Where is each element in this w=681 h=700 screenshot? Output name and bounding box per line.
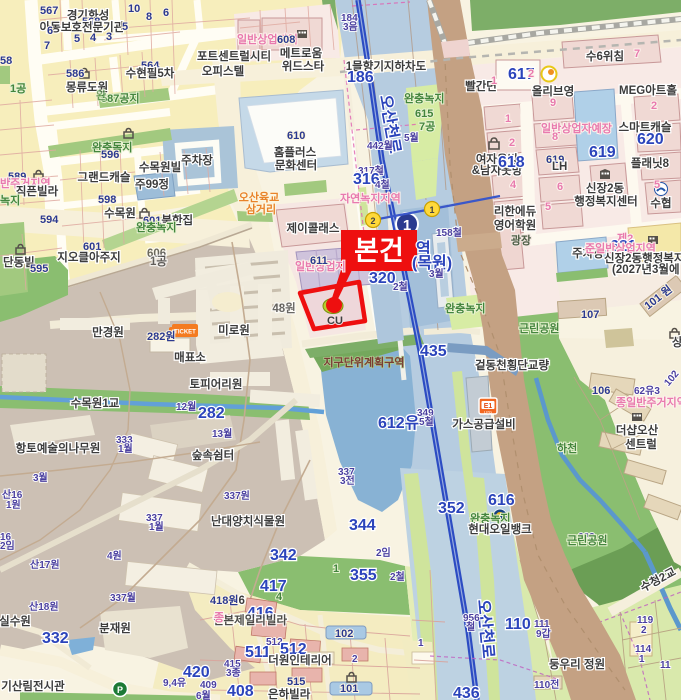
svg-text:더샵오산: 더샵오산: [616, 423, 659, 437]
svg-text:행정복지센터: 행정복지센터: [574, 194, 637, 208]
svg-text:6: 6: [47, 25, 53, 37]
svg-text:619: 619: [589, 144, 616, 161]
svg-text:2: 2: [370, 216, 375, 226]
svg-text:2임: 2임: [0, 539, 15, 552]
svg-text:제이콜래스: 제이콜래스: [287, 221, 340, 235]
svg-text:상가: 상가: [672, 335, 681, 349]
svg-text:5: 5: [122, 21, 128, 33]
svg-text:주99정: 주99정: [135, 177, 169, 191]
svg-text:587공지: 587공지: [101, 91, 140, 105]
svg-text:342: 342: [270, 547, 297, 564]
svg-text:436: 436: [453, 685, 480, 700]
svg-text:1공: 1공: [150, 255, 167, 268]
svg-text:직픈빌라: 직픈빌라: [16, 184, 59, 198]
svg-text:숲속쉼터: 숲속쉼터: [192, 448, 234, 462]
svg-text:3월: 3월: [33, 472, 48, 484]
svg-text:9,4유: 9,4유: [163, 677, 186, 689]
svg-text:지오클아주지: 지오클아주지: [57, 250, 120, 264]
svg-text:596: 596: [101, 149, 119, 161]
svg-text:삼거리: 삼거리: [246, 202, 276, 216]
svg-text:58: 58: [0, 55, 12, 67]
svg-text:408: 408: [227, 683, 254, 700]
svg-text:토피어리원: 토피어리원: [190, 377, 243, 391]
svg-text:겉동천횡단교량: 겉동천횡단교량: [475, 358, 549, 372]
svg-text:598: 598: [98, 194, 116, 206]
svg-text:608: 608: [277, 34, 295, 46]
svg-text:615: 615: [415, 108, 433, 120]
svg-text:수6위침: 수6위침: [586, 49, 624, 63]
svg-text:올리브영: 올리브영: [532, 84, 574, 98]
svg-text:420: 420: [183, 664, 210, 681]
svg-text:근린공원: 근린공원: [519, 321, 559, 335]
svg-text:417: 417: [260, 578, 287, 595]
svg-text:620: 620: [637, 131, 664, 148]
svg-text:5월: 5월: [404, 132, 419, 144]
svg-text:2: 2: [641, 625, 647, 636]
svg-text:9갑: 9갑: [536, 628, 552, 640]
svg-text:442월: 442월: [367, 140, 393, 152]
svg-text:영어학원: 영어학원: [494, 218, 536, 232]
svg-text:기산림전시관: 기산림전시관: [1, 679, 65, 693]
svg-text:2: 2: [509, 137, 515, 149]
svg-text:CU: CU: [327, 315, 343, 327]
svg-text:신장2동: 신장2동: [586, 181, 625, 195]
svg-text:본건: 본건: [354, 236, 404, 266]
svg-text:5: 5: [545, 201, 551, 213]
svg-text:LH: LH: [552, 161, 567, 173]
svg-text:광장: 광장: [511, 233, 531, 247]
svg-text:7공: 7공: [419, 120, 435, 133]
svg-text:186: 186: [347, 69, 374, 86]
svg-text:1: 1: [491, 75, 497, 87]
svg-text:미로원: 미로원: [218, 323, 250, 337]
svg-text:은하빌라: 은하빌라: [268, 687, 311, 700]
svg-text:연본제일리빌라: 연본제일리빌라: [213, 613, 287, 627]
svg-text:리한에듀: 리한에듀: [494, 204, 537, 218]
svg-text:282원: 282원: [147, 329, 175, 343]
svg-text:5: 5: [74, 33, 80, 45]
svg-text:오피스텔: 오피스텔: [202, 64, 244, 78]
svg-text:지구단위계획구역: 지구단위계획구역: [324, 355, 405, 369]
svg-text:1: 1: [429, 205, 434, 215]
svg-text:수현필5차: 수현필5차: [126, 66, 175, 80]
svg-text:282: 282: [198, 405, 225, 422]
svg-text:3월: 3월: [429, 268, 444, 280]
svg-text:철: 철: [466, 620, 475, 633]
svg-text:595: 595: [30, 263, 48, 275]
svg-text:612유: 612유: [378, 414, 420, 432]
svg-text:위드스타: 위드스타: [282, 59, 325, 73]
svg-text:4: 4: [276, 591, 283, 603]
svg-text:실수원: 실수원: [0, 614, 31, 628]
svg-text:101: 101: [340, 683, 358, 695]
svg-text:녹지: 녹지: [0, 193, 20, 207]
svg-text:62유3: 62유3: [634, 385, 660, 397]
svg-text:337월: 337월: [110, 592, 136, 604]
svg-text:산17원: 산17원: [30, 558, 60, 571]
svg-text:110: 110: [505, 616, 531, 633]
svg-text:2: 2: [352, 654, 358, 665]
svg-text:110전: 110전: [534, 678, 559, 691]
svg-text:5철: 5철: [419, 415, 434, 428]
svg-text:주차장: 주차장: [181, 153, 213, 167]
svg-text:수목원: 수목원: [104, 206, 136, 220]
svg-text:611: 611: [310, 255, 328, 267]
svg-text:오산육교: 오산육교: [239, 190, 279, 204]
svg-text:6: 6: [163, 7, 169, 19]
svg-text:수협: 수협: [650, 196, 671, 210]
svg-text:가스공급설비: 가스공급설비: [452, 417, 515, 431]
svg-text:현대오일뱅크: 현대오일뱅크: [468, 522, 532, 536]
svg-text:332: 332: [42, 630, 69, 647]
svg-text:3음: 3음: [343, 21, 358, 33]
svg-text:11: 11: [660, 660, 671, 671]
svg-text:6: 6: [557, 181, 563, 193]
svg-text:4철: 4철: [375, 178, 390, 191]
svg-text:610: 610: [287, 130, 305, 142]
svg-text:107: 107: [581, 309, 599, 321]
svg-text:항토예술의나무원: 항토예술의나무원: [16, 441, 101, 455]
svg-text:매표소: 매표소: [174, 350, 206, 364]
svg-text:하천: 하천: [557, 441, 577, 455]
svg-text:플래닛8: 플래닛8: [631, 156, 670, 170]
svg-text:P: P: [117, 685, 123, 695]
svg-text:1공: 1공: [10, 82, 26, 95]
svg-text:(2027년3월에: (2027년3월에: [612, 262, 680, 276]
svg-text:586: 586: [66, 68, 84, 80]
svg-text:12월: 12월: [176, 401, 196, 413]
svg-text:산18원: 산18원: [29, 600, 59, 613]
svg-text:MEG아트홀: MEG아트홀: [619, 83, 677, 97]
svg-text:1: 1: [639, 654, 645, 665]
svg-text:2: 2: [651, 100, 657, 112]
svg-text:337원: 337원: [224, 489, 250, 502]
svg-text:포트센트럴시티: 포트센트럴시티: [197, 49, 271, 63]
svg-text:종일반주거지역: 종일반주거지역: [616, 395, 681, 409]
svg-text:3: 3: [106, 31, 112, 43]
svg-text:홈플러스: 홈플러스: [274, 145, 317, 159]
svg-text:1: 1: [333, 563, 339, 575]
svg-text:자연녹지지역: 자연녹지지역: [340, 191, 401, 205]
svg-text:515: 515: [287, 676, 305, 688]
svg-text:둥우리 정원: 둥우리 정원: [549, 657, 605, 671]
svg-text:수목원빌: 수목원빌: [139, 160, 181, 174]
svg-text:1월: 1월: [118, 443, 133, 455]
svg-text:435: 435: [420, 343, 447, 360]
svg-text:6월: 6월: [196, 690, 211, 700]
svg-text:1원: 1원: [6, 498, 21, 511]
svg-text:2: 2: [528, 68, 534, 80]
svg-text:완: 완: [96, 89, 106, 102]
svg-text:문화센터: 문화센터: [275, 158, 317, 172]
svg-text:352: 352: [438, 500, 465, 517]
svg-text:센트럴: 센트럴: [625, 437, 657, 451]
svg-text:418원6: 418원6: [210, 593, 245, 607]
svg-text:4: 4: [90, 32, 97, 44]
svg-text:5: 5: [654, 179, 660, 191]
svg-text:344: 344: [349, 517, 376, 534]
svg-text:7: 7: [634, 48, 640, 60]
svg-text:355: 355: [350, 567, 377, 584]
svg-text:616: 616: [488, 492, 515, 509]
svg-text:567: 567: [40, 5, 58, 17]
svg-text:만경원: 만경원: [92, 325, 124, 339]
svg-text:1월: 1월: [149, 521, 164, 533]
svg-text:2임: 2임: [376, 546, 391, 559]
svg-text:9: 9: [550, 97, 556, 109]
svg-text:106: 106: [592, 385, 610, 397]
svg-text:4원: 4원: [107, 549, 122, 562]
svg-text:618: 618: [498, 154, 525, 171]
svg-text:완충녹지: 완충녹지: [404, 91, 444, 105]
svg-text:그랜드캐슬: 그랜드캐슬: [78, 170, 131, 184]
svg-text:7: 7: [44, 40, 50, 52]
svg-text:완충녹지: 완충녹지: [136, 220, 176, 234]
svg-text:분재원: 분재원: [99, 621, 131, 635]
svg-text:158철: 158철: [436, 226, 462, 239]
svg-text:난대양치식물원: 난대양치식물원: [211, 514, 285, 528]
svg-text:더원인테리어: 더원인테리어: [268, 653, 331, 667]
svg-text:10: 10: [128, 3, 140, 15]
svg-text:409: 409: [200, 680, 217, 691]
svg-text:종: 종: [214, 611, 224, 624]
svg-text:3전: 3전: [340, 474, 355, 487]
svg-text:1: 1: [418, 638, 424, 649]
svg-text:13월: 13월: [212, 428, 232, 440]
svg-text:LPG: LPG: [484, 410, 492, 415]
svg-text:3종: 3종: [226, 667, 241, 679]
svg-text:8: 8: [146, 11, 152, 23]
svg-text:102: 102: [335, 628, 353, 640]
svg-text:4: 4: [510, 179, 517, 191]
svg-text:완충녹지: 완충녹지: [470, 511, 510, 525]
svg-text:메트로움: 메트로움: [280, 46, 323, 60]
svg-text:594: 594: [40, 214, 59, 226]
svg-text:TICKET: TICKET: [174, 330, 196, 336]
svg-text:1: 1: [505, 113, 511, 125]
svg-text:48원: 48원: [272, 301, 295, 315]
svg-text:완충녹지: 완충녹지: [445, 301, 485, 315]
svg-text:신장2동행정복지: 신장2동행정복지: [604, 251, 681, 265]
svg-text:근린공원: 근린공원: [567, 533, 607, 547]
svg-text:수목원1교: 수목원1교: [71, 396, 120, 410]
svg-text:2철: 2철: [393, 280, 408, 293]
svg-text:320: 320: [369, 270, 396, 287]
svg-text:2철: 2철: [390, 570, 405, 583]
svg-text:8: 8: [552, 131, 558, 143]
